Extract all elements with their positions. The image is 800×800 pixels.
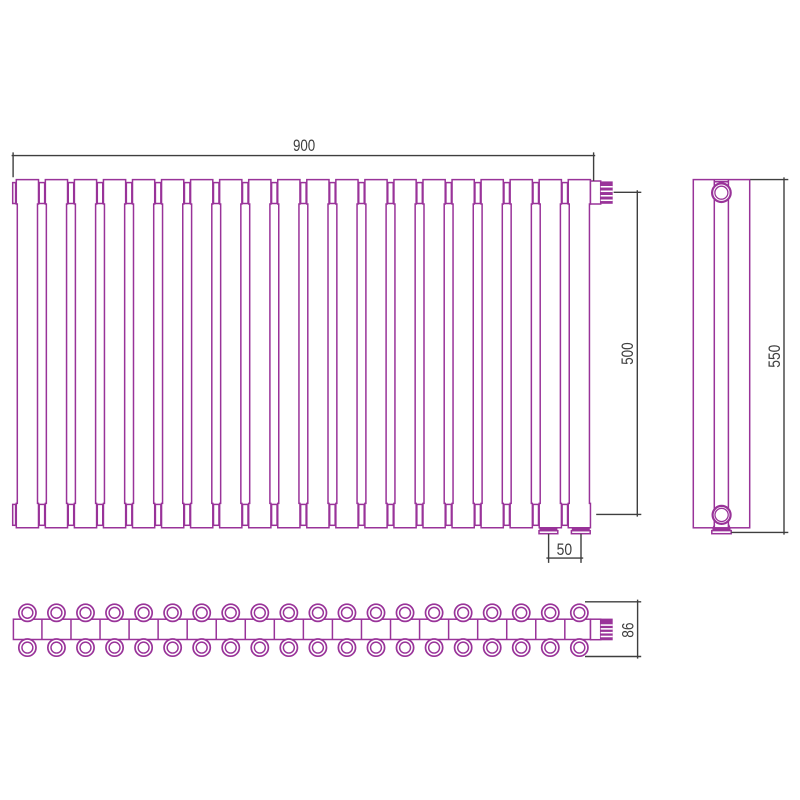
svg-text:86: 86 <box>619 622 637 637</box>
svg-text:550: 550 <box>766 345 784 368</box>
svg-text:50: 50 <box>557 541 573 559</box>
svg-text:500: 500 <box>619 342 637 364</box>
svg-text:900: 900 <box>293 137 315 155</box>
